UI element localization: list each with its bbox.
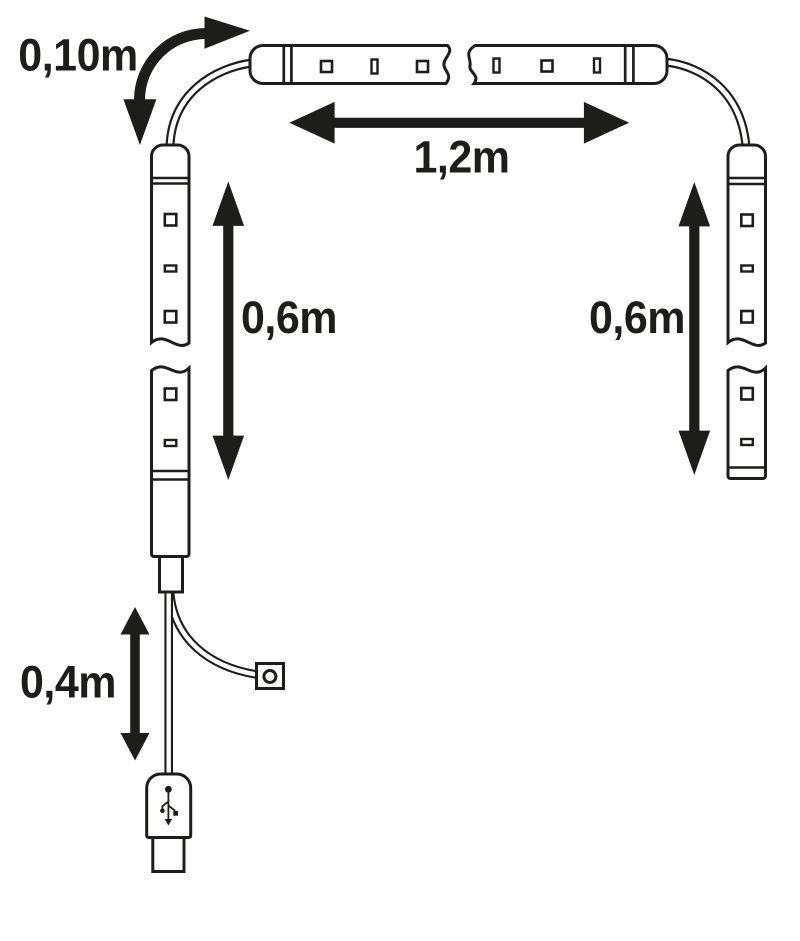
svg-text:0,6m: 0,6m (589, 293, 685, 343)
svg-text:0,10m: 0,10m (18, 31, 137, 81)
svg-text:0,6m: 0,6m (241, 293, 337, 343)
svg-text:1,2m: 1,2m (414, 133, 510, 183)
svg-text:0,4m: 0,4m (20, 658, 116, 708)
